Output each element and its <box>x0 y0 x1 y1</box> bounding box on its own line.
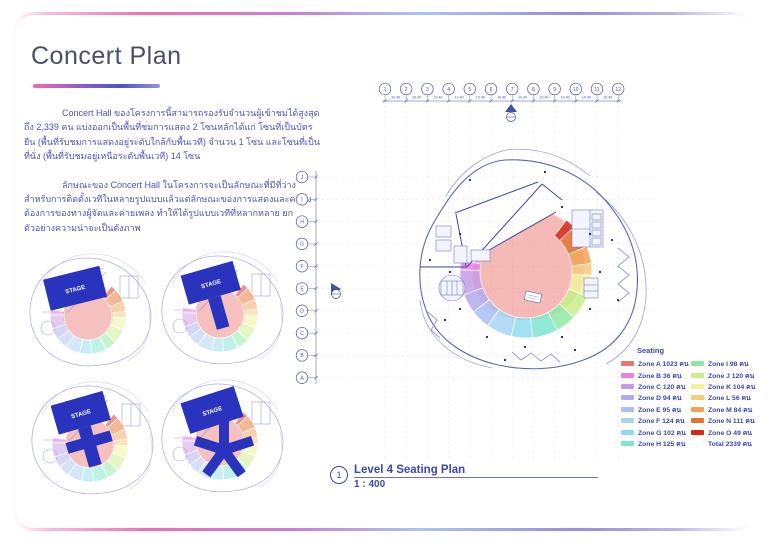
swatch-zone-k <box>691 384 704 389</box>
grid-column-label: 10 <box>573 87 579 93</box>
grid-column-label: 9 <box>553 87 556 93</box>
legend-item-zone-o: Zone O 49 คน <box>691 426 767 437</box>
drawing-caption: 1 Level 4 Seating Plan 1 : 400 <box>330 464 598 490</box>
page-title: Concert Plan <box>31 42 182 71</box>
grid-column-label: 3 <box>426 87 429 93</box>
legend-item-zone-i: Zone I 98 คน <box>691 358 767 369</box>
grid-column-label: 8 <box>532 87 535 93</box>
dimension-label: 20.00 <box>412 95 421 99</box>
legend-item-total: Total 2339 คน <box>691 438 767 449</box>
swatch-zone-a <box>621 361 634 366</box>
dimension-label: 10.40 <box>518 95 527 99</box>
title-underline <box>33 84 160 88</box>
swatch-zone-m <box>691 407 704 412</box>
swatch-zone-l <box>691 395 704 400</box>
grid-row-label: H <box>300 219 304 225</box>
swatch-zone-j <box>691 373 704 378</box>
legend-item-zone-d: Zone D 94 คน <box>621 392 691 403</box>
swatch-zone-i <box>691 361 704 366</box>
stage-layout-diagram-2: STAGE <box>148 244 288 374</box>
swatch-zone-c <box>621 384 634 389</box>
grid-column-label: 7 <box>511 87 514 93</box>
intro-paragraph-2: ลักษณะของ Concert Hall ในโครงการจะเป็นลั… <box>24 178 320 236</box>
swatch-zone-b <box>621 373 634 378</box>
legend-item-zone-e: Zone E 95 คน <box>621 404 691 415</box>
legend-total: Total 2339 คน <box>708 438 752 449</box>
swatch-zone-f <box>621 418 634 423</box>
grid-column-label: 6 <box>490 87 493 93</box>
grid-row-label: I <box>301 197 302 203</box>
grid-column-label: 11 <box>594 87 599 93</box>
grid-column-label: 1 <box>384 87 387 93</box>
grid-row-label: F <box>300 264 303 270</box>
legend-item-zone-g: Zone G 102 คน <box>621 426 691 437</box>
swatch-zone-n <box>691 418 704 423</box>
stage-layout-diagram-4: STAGE <box>148 372 288 502</box>
grid-column-label: 5 <box>468 87 471 93</box>
dimension-label: 10.40 <box>391 95 400 99</box>
dimension-label: 10.40 <box>582 95 591 99</box>
grid-column-label: 12 <box>615 87 621 93</box>
dimension-label: 10.40 <box>434 95 443 99</box>
drawing-number-bubble: 1 <box>330 466 348 484</box>
seating-legend: Seating Zone A 1023 คน Zone B 36 คน Zone… <box>621 346 767 449</box>
grid-row-label: G <box>300 242 304 248</box>
concert-plan-slide: Concert Plan Concert Hall ของโครงการนี้ส… <box>0 0 768 543</box>
section-marker-top <box>505 104 517 122</box>
legend-item-zone-k: Zone K 104 คน <box>691 381 767 392</box>
dimension-label: 10.40 <box>603 95 612 99</box>
dimension-label: 10.40 <box>497 95 506 99</box>
dimension-label: 10.40 <box>455 95 464 99</box>
grid-column-label: 4 <box>447 87 450 93</box>
legend-item-zone-n: Zone N 111 คน <box>691 415 767 426</box>
dimension-label: 10.40 <box>476 95 485 99</box>
legend-item-zone-a: Zone A 1023 คน <box>621 358 691 369</box>
swatch-zone-o <box>691 430 704 435</box>
drawing-scale: 1 : 400 <box>354 479 598 490</box>
swatch-zone-g <box>621 430 634 435</box>
legend-item-zone-j: Zone J 120 คน <box>691 369 767 380</box>
legend-title: Seating <box>637 346 767 355</box>
swatch-zone-d <box>621 395 634 400</box>
stage-layout-diagram-1: STAGE <box>16 246 156 376</box>
legend-item-zone-h: Zone H 125 คน <box>621 438 691 449</box>
legend-item-zone-b: Zone B 36 คน <box>621 369 691 380</box>
swatch-zone-h <box>621 441 634 446</box>
legend-item-zone-f: Zone F 124 คน <box>621 415 691 426</box>
intro-paragraph-1: Concert Hall ของโครงการนี้สามารถรองรับจำ… <box>24 106 320 164</box>
intro-text: Concert Hall ของโครงการนี้สามารถรองรับจำ… <box>24 106 320 249</box>
grid-row-label: C <box>300 331 304 337</box>
dimension-label: 10.40 <box>540 95 549 99</box>
stage-layout-diagram-3: STAGE <box>18 374 158 504</box>
legend-item-zone-l: Zone L 56 คน <box>691 392 767 403</box>
drawing-title: Level 4 Seating Plan <box>354 464 598 478</box>
grid-row-label: D <box>300 309 304 315</box>
legend-item-zone-m: Zone M 84 คน <box>691 404 767 415</box>
grid-column-label: 2 <box>405 87 408 93</box>
section-marker-left <box>331 283 341 299</box>
legend-item-zone-c: Zone C 120 คน <box>621 381 691 392</box>
dimension-label: 10.40 <box>561 95 570 99</box>
swatch-zone-e <box>621 407 634 412</box>
